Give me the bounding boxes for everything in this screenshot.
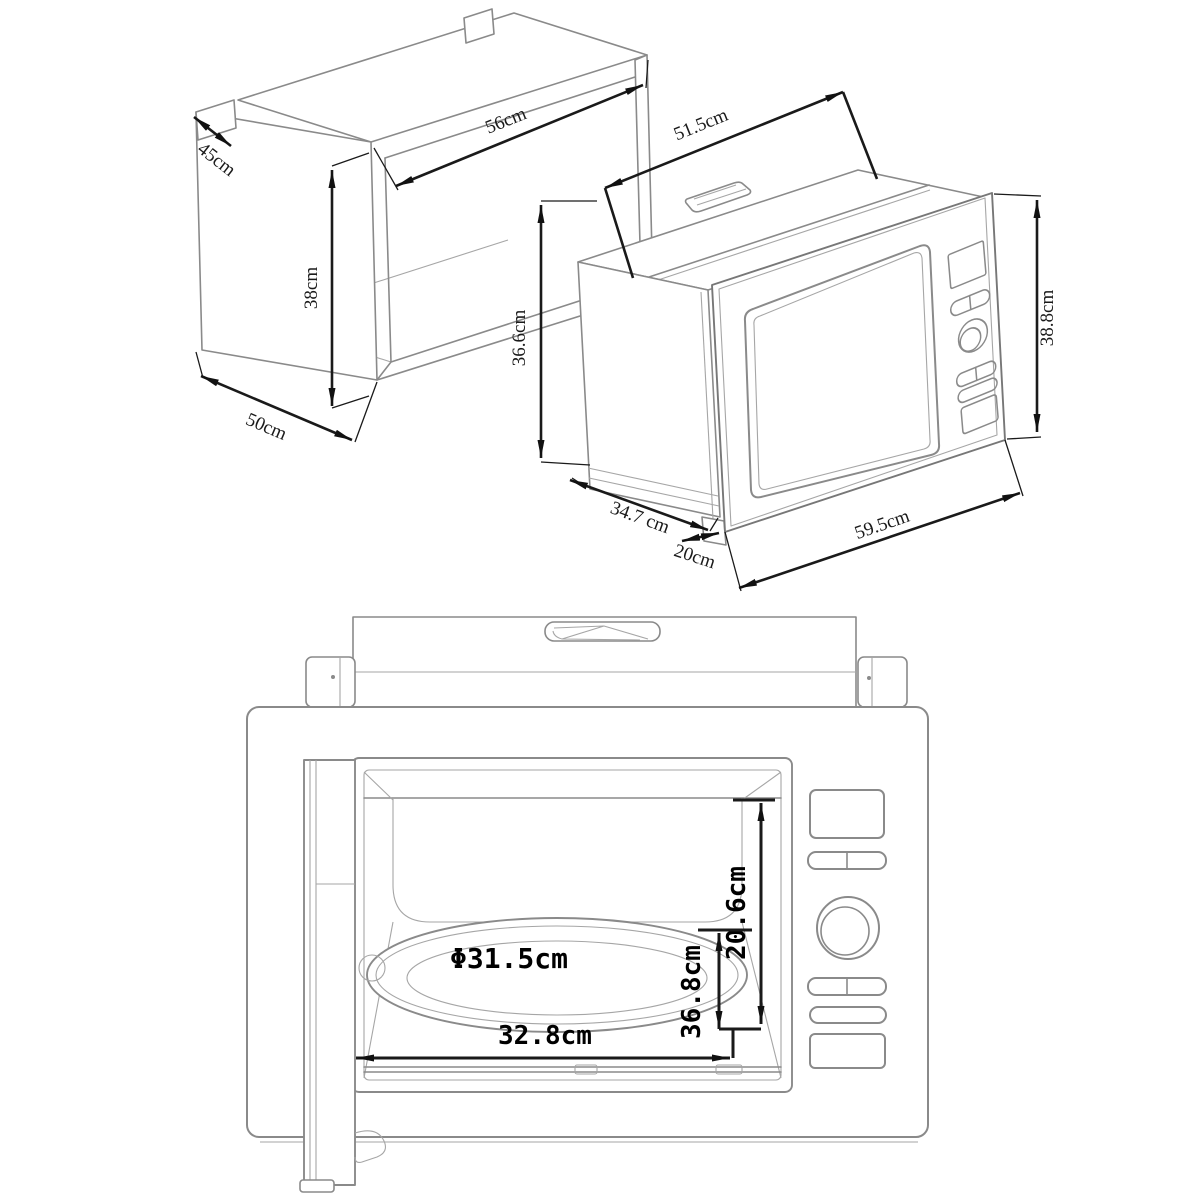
- microwave-iso-drawing: 51.5cm 36.6cm 34.7 cm 20cm 59.5cm 38.8cm: [509, 92, 1058, 591]
- dim-label-36-8cm: 36.8cm: [677, 945, 707, 1039]
- microwave-left-panel: [578, 262, 720, 517]
- front-bracket-right: [858, 657, 907, 707]
- dim-label-38cm: 38cm: [301, 267, 322, 309]
- front-bracket-left: [306, 657, 355, 707]
- cabinet-opening-left-edge: [385, 158, 391, 362]
- front-bracket-left-dot: [331, 675, 335, 679]
- dim-label-32-8cm: 32.8cm: [498, 1021, 592, 1051]
- front-bracket-right-dot: [867, 676, 871, 680]
- dim-label-turntable: Φ31.5cm: [450, 942, 568, 975]
- door-foot: [300, 1180, 334, 1192]
- installation-diagram-page: 45cm 56cm 38cm 50cm: [0, 0, 1200, 1200]
- dim-label-50cm: 50cm: [243, 409, 290, 445]
- dim-label-20-6cm: 20.6cm: [722, 866, 752, 960]
- front-handle: [545, 622, 660, 641]
- dim-label-51-5cm: 51.5cm: [671, 105, 731, 146]
- dim-label-59-5cm: 59.5cm: [852, 506, 912, 544]
- cabinet-top-face: [238, 13, 647, 142]
- microwave-top-vent: [686, 182, 751, 212]
- technical-drawing-canvas: 45cm 56cm 38cm 50cm: [0, 0, 1200, 1200]
- front-view-drawing: 20.6cm 36.8cm 32.8cm Φ31.5cm: [247, 617, 928, 1192]
- dim-label-38-8cm: 38.8cm: [1037, 290, 1058, 347]
- microwave-foot: [702, 517, 726, 545]
- door-open-panel: [304, 760, 355, 1185]
- dim-label-36-6cm: 36.6cm: [509, 310, 530, 367]
- iso-button-pair-mid-divider: [976, 367, 977, 380]
- dim-label-20cm: 20cm: [671, 540, 718, 573]
